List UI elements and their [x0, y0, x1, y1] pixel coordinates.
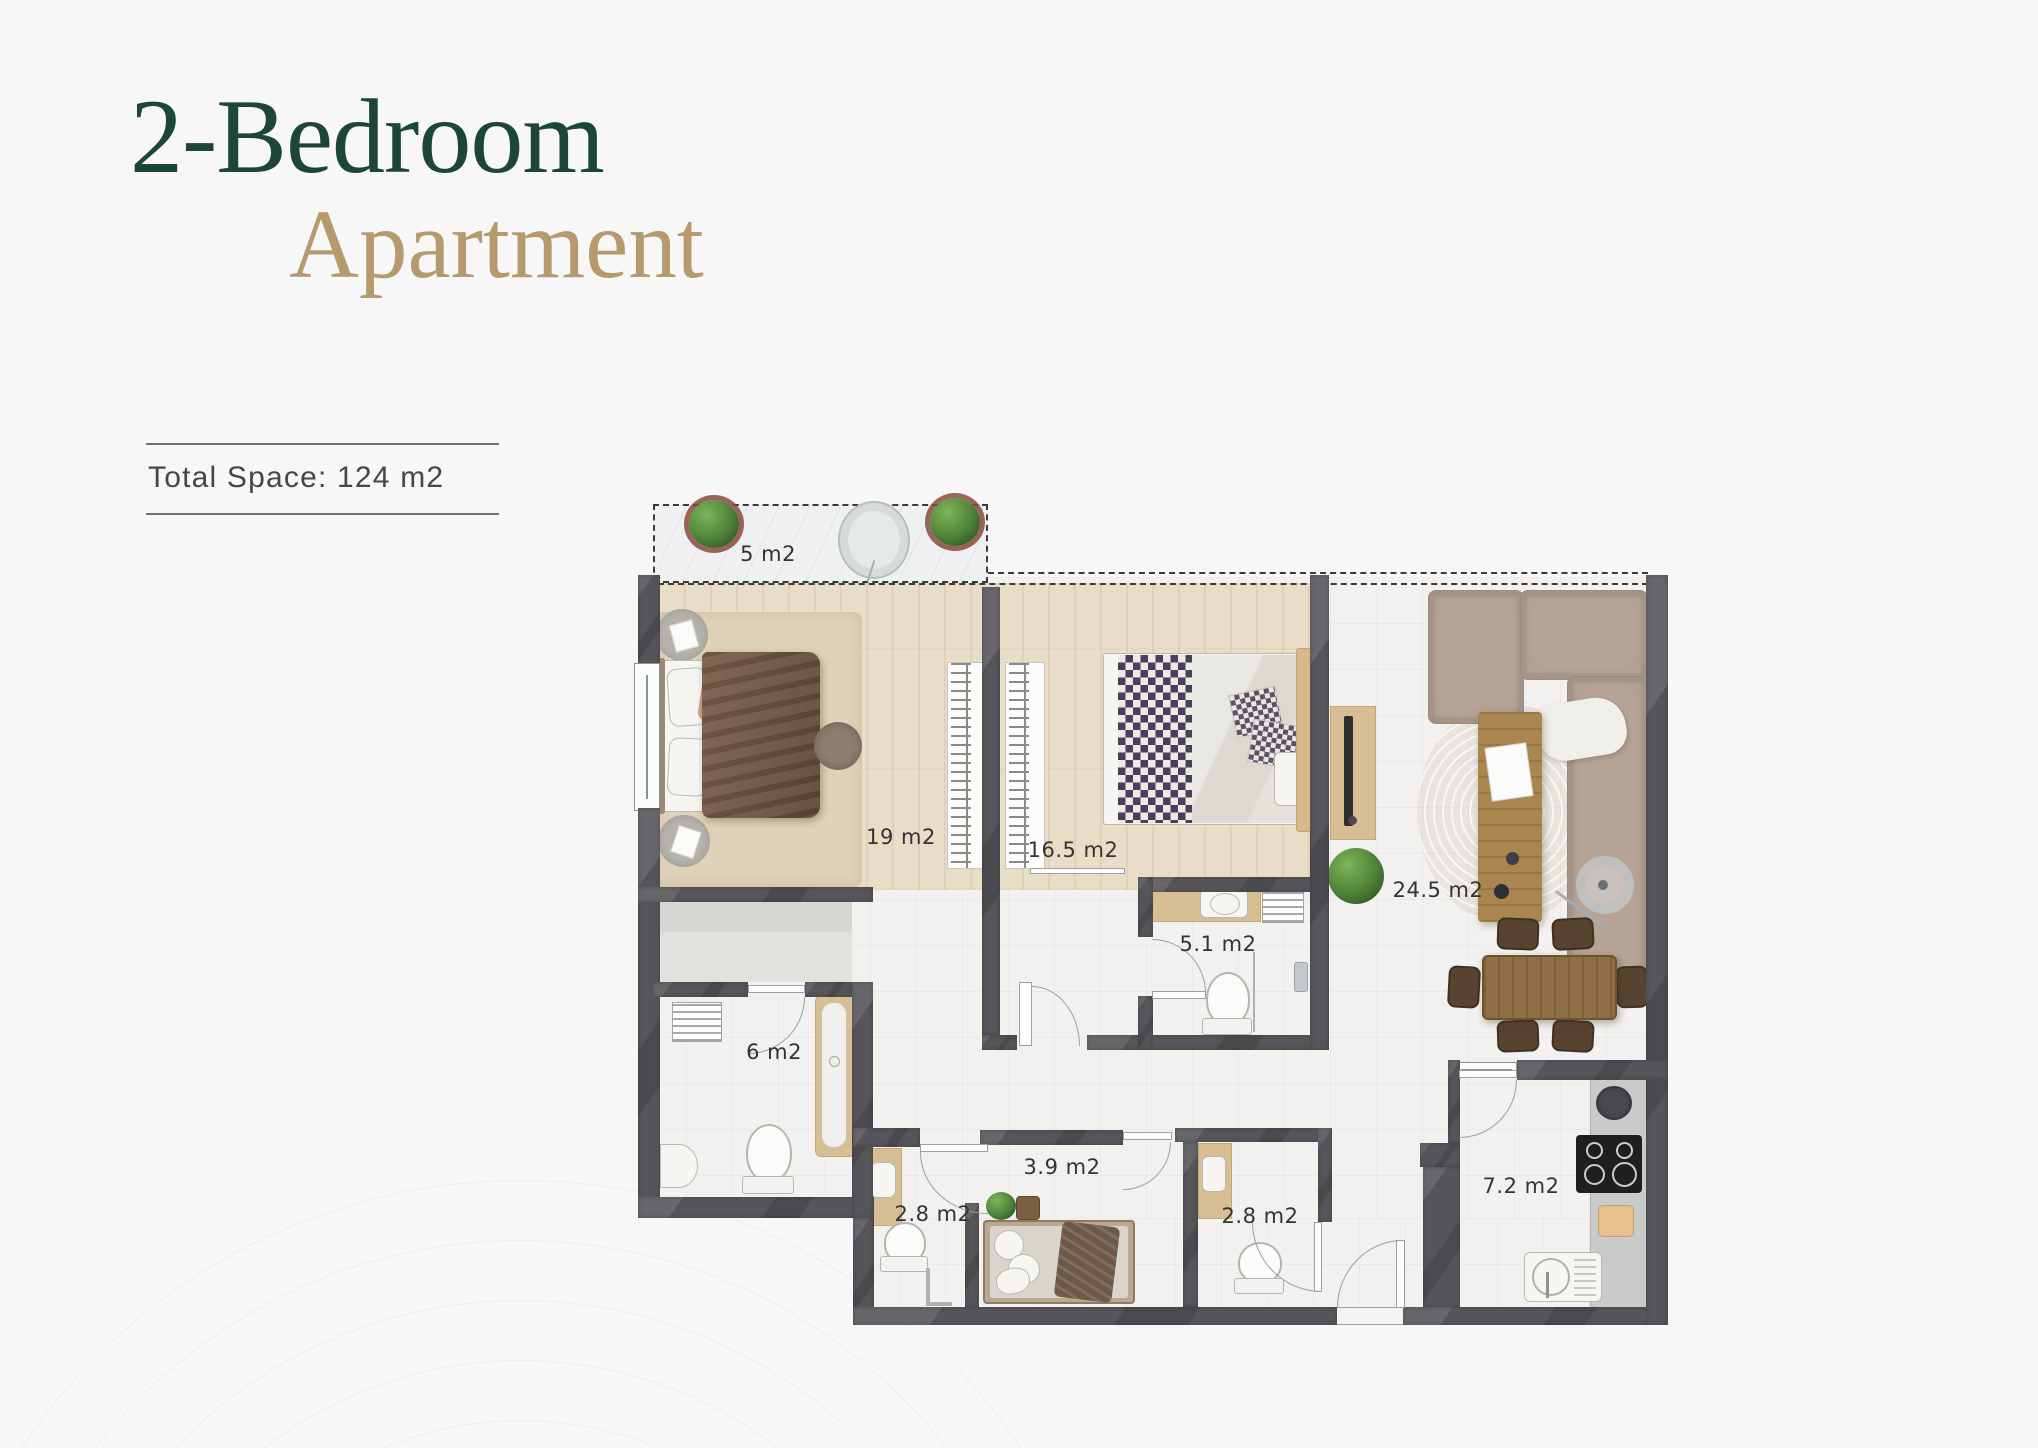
wall [1517, 1060, 1668, 1080]
room-label-bedroom-1: 19 m2 [866, 825, 936, 849]
dining-chair [1496, 1019, 1539, 1052]
room-label-bedroom-2: 16.5 m2 [1028, 838, 1119, 862]
room-label-kitchen: 7.2 m2 [1483, 1174, 1560, 1198]
toilet-tank [1202, 1018, 1252, 1035]
sink [1202, 1156, 1226, 1192]
sofa-section [1520, 590, 1648, 680]
bathtub-inner [821, 1002, 847, 1148]
page-title-line-1: 2-Bedroom [130, 84, 604, 190]
bed-checkered-throw [1118, 655, 1192, 823]
wall [638, 1197, 874, 1218]
towel-rail [926, 1302, 952, 1306]
ottoman-pouf [814, 722, 862, 770]
hanging-chair-icon [838, 501, 910, 579]
wall [1183, 1142, 1198, 1307]
plant-icon [1328, 848, 1384, 904]
daybed-throw [1054, 1221, 1121, 1304]
room-label-bathroom-2: 6 m2 [746, 1040, 802, 1064]
sink [870, 1162, 896, 1198]
wall [1403, 1307, 1668, 1325]
wardrobe-rack [947, 662, 987, 869]
door-leaf [1019, 982, 1032, 1046]
entrance-threshold [1337, 1307, 1403, 1325]
balcony-plant-icon [689, 500, 739, 548]
wall [638, 808, 660, 1218]
total-space-text: Total Space: 124 m2 [148, 461, 444, 494]
wall [805, 982, 852, 997]
dining-chair [1496, 917, 1539, 950]
wall [1175, 1128, 1332, 1142]
cooktop-burner [1586, 1142, 1603, 1159]
wall [980, 1130, 1123, 1145]
toilet-tank [742, 1176, 794, 1194]
coffee-table-decor [1506, 852, 1519, 865]
room-label-wc-2: 2.8 m2 [1222, 1204, 1299, 1228]
cooktop-burner [1616, 1142, 1633, 1159]
shower-head-icon [1294, 962, 1308, 992]
window [634, 663, 660, 811]
room-label-bathroom-1: 5.1 m2 [1180, 932, 1257, 956]
door-leaf [1459, 1070, 1517, 1078]
dining-chair [1615, 965, 1648, 1008]
radiator-icon [672, 1002, 722, 1042]
dining-table [1482, 955, 1617, 1020]
toilet-icon [746, 1124, 792, 1182]
sink-basin [1210, 893, 1240, 915]
plant-icon [986, 1192, 1016, 1220]
wall [852, 982, 873, 1218]
wall [1087, 1035, 1329, 1050]
wall [1318, 1128, 1332, 1222]
wall [638, 887, 873, 902]
towel-rail [926, 1268, 930, 1306]
bathtub-drain [829, 1056, 840, 1067]
page-root: 2-Bedroom Apartment Total Space: 124 m2 [0, 0, 2038, 1448]
shower-screen [1253, 952, 1255, 1032]
cooktop-burner [1584, 1164, 1605, 1185]
coffee-table-decor [1494, 884, 1509, 899]
wall [653, 982, 748, 997]
toilet-tank [1234, 1278, 1284, 1294]
sink [660, 1144, 698, 1188]
wall [1420, 1143, 1460, 1167]
bed-blanket [702, 652, 820, 818]
tv-decor-dot [1348, 816, 1357, 825]
kitchen-pot [1596, 1086, 1632, 1120]
page-title-line-2: Apartment [289, 196, 704, 293]
balcony-plant-icon [930, 498, 980, 546]
window-dashed-line [658, 583, 1648, 585]
wall [853, 1128, 920, 1147]
toilet-tank [880, 1256, 928, 1272]
tv-icon [1344, 716, 1353, 826]
wall [1310, 575, 1329, 1050]
coffee-table-papers [1484, 742, 1533, 801]
wall [1138, 877, 1153, 937]
kitchen-sink-basin [1532, 1258, 1570, 1296]
kitchen-faucet [1546, 1272, 1549, 1298]
wall [638, 575, 660, 667]
wall [982, 1035, 1017, 1050]
room-label-wc-1: 2.8 m2 [895, 1202, 972, 1226]
dining-chair [1551, 917, 1595, 951]
total-space-panel: Total Space: 124 m2 [146, 443, 499, 515]
room-label-living-room: 24.5 m2 [1393, 878, 1484, 902]
door-leaf [748, 985, 805, 993]
vestibule-niche [658, 902, 852, 932]
dining-chair [1551, 1019, 1595, 1053]
wall [853, 1307, 1337, 1325]
room-label-balcony: 5 m2 [740, 542, 796, 566]
dining-chair [1447, 965, 1481, 1009]
window-dashed-line [988, 572, 1648, 574]
door-leaf [1123, 1132, 1172, 1140]
sofa-chaise [1428, 590, 1524, 724]
floor-lamp-bulb [1598, 880, 1608, 890]
wall [1646, 575, 1668, 1325]
side-table [1016, 1196, 1040, 1220]
cooktop-burner [1612, 1162, 1637, 1187]
radiator-icon [1262, 890, 1304, 923]
wall [1138, 877, 1329, 892]
sink-drainer [1574, 1258, 1596, 1296]
wall [1138, 996, 1153, 1050]
wall [1423, 1167, 1460, 1307]
cutting-board [1598, 1205, 1634, 1237]
room-label-hall: 3.9 m2 [1024, 1155, 1101, 1179]
door-leaf [1030, 868, 1125, 874]
wall [982, 587, 1000, 1035]
door-leaf [920, 1144, 988, 1152]
